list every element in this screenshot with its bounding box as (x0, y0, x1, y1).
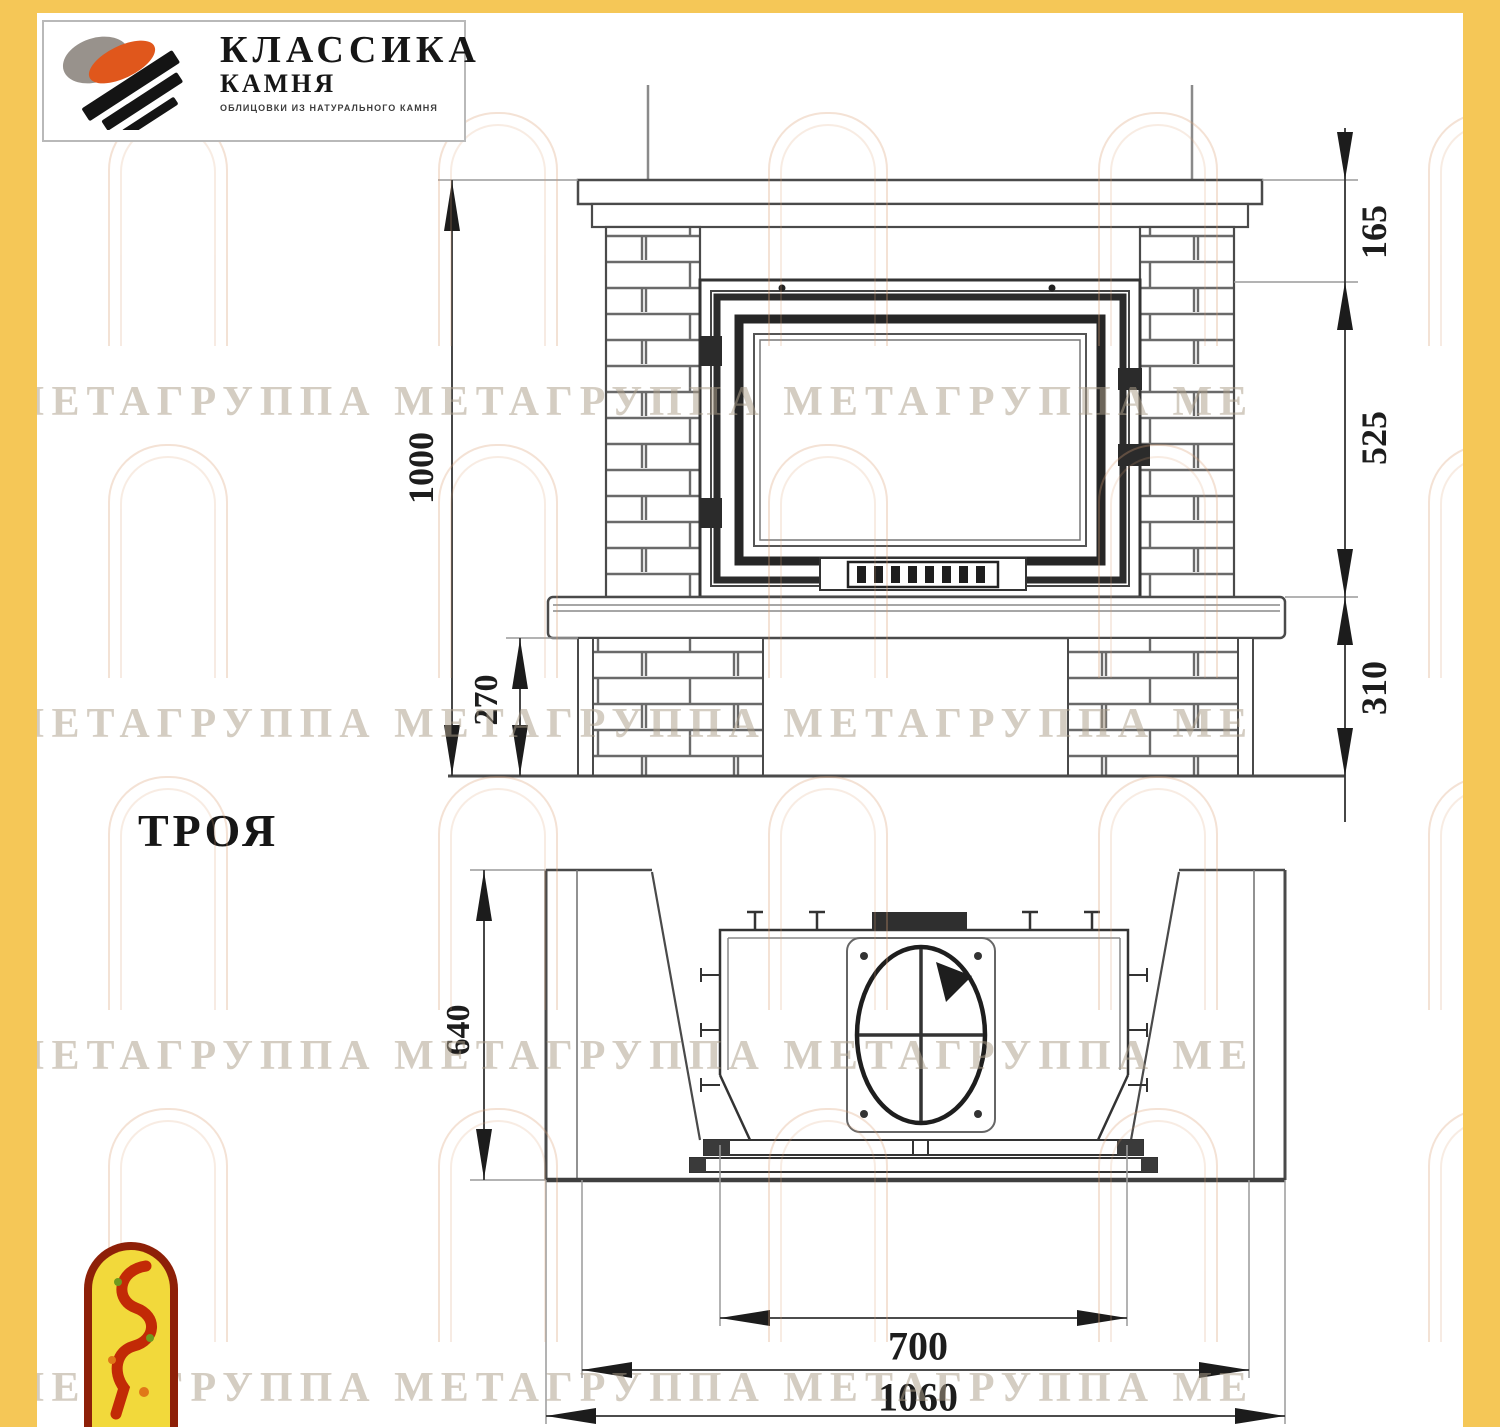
emblem-figure-icon (84, 1242, 178, 1427)
brand-tagline: ОБЛИЦОВКИ ИЗ НАТУРАЛЬНОГО КАМНЯ (220, 103, 460, 113)
dim-label-shelf-to-insert: 165 (1353, 205, 1395, 259)
brand-name-line1: КЛАССИКА (220, 30, 460, 70)
logo-mark-icon (56, 30, 216, 130)
spec-sheet-page: 1000 270 165 525 310 640 700 1060 1160 Т… (0, 0, 1500, 1427)
left-accent-strip (0, 0, 37, 1427)
dim-label-pedestal-height: 270 (468, 675, 506, 726)
dim-label-insert-to-floor: 310 (1353, 661, 1395, 715)
logo-mark (56, 30, 216, 130)
dim-label-overall-width: 1160 (879, 1420, 957, 1427)
dim-label-depth: 640 (440, 1005, 478, 1056)
dim-label-firebox-width: 700 (888, 1323, 948, 1370)
front-elevation-drawing (448, 85, 1345, 776)
top-accent-strip (0, 0, 1500, 13)
brand-name-line2: КАМНЯ (220, 70, 460, 98)
right-accent-strip (1463, 0, 1500, 1427)
logo-box: КЛАССИКА КАМНЯ ОБЛИЦОВКИ ИЗ НАТУРАЛЬНОГО… (42, 20, 466, 142)
dim-label-insert-height: 525 (1353, 411, 1395, 465)
model-name: ТРОЯ (138, 804, 279, 857)
brand-text-block: КЛАССИКА КАМНЯ ОБЛИЦОВКИ ИЗ НАТУРАЛЬНОГО… (220, 30, 460, 113)
meta-emblem (84, 1242, 178, 1427)
dim-label-inner-width: 1060 (878, 1374, 958, 1421)
dim-label-total-height: 1000 (400, 432, 442, 504)
plan-view-drawing (546, 870, 1285, 1180)
technical-drawing (0, 0, 1500, 1427)
